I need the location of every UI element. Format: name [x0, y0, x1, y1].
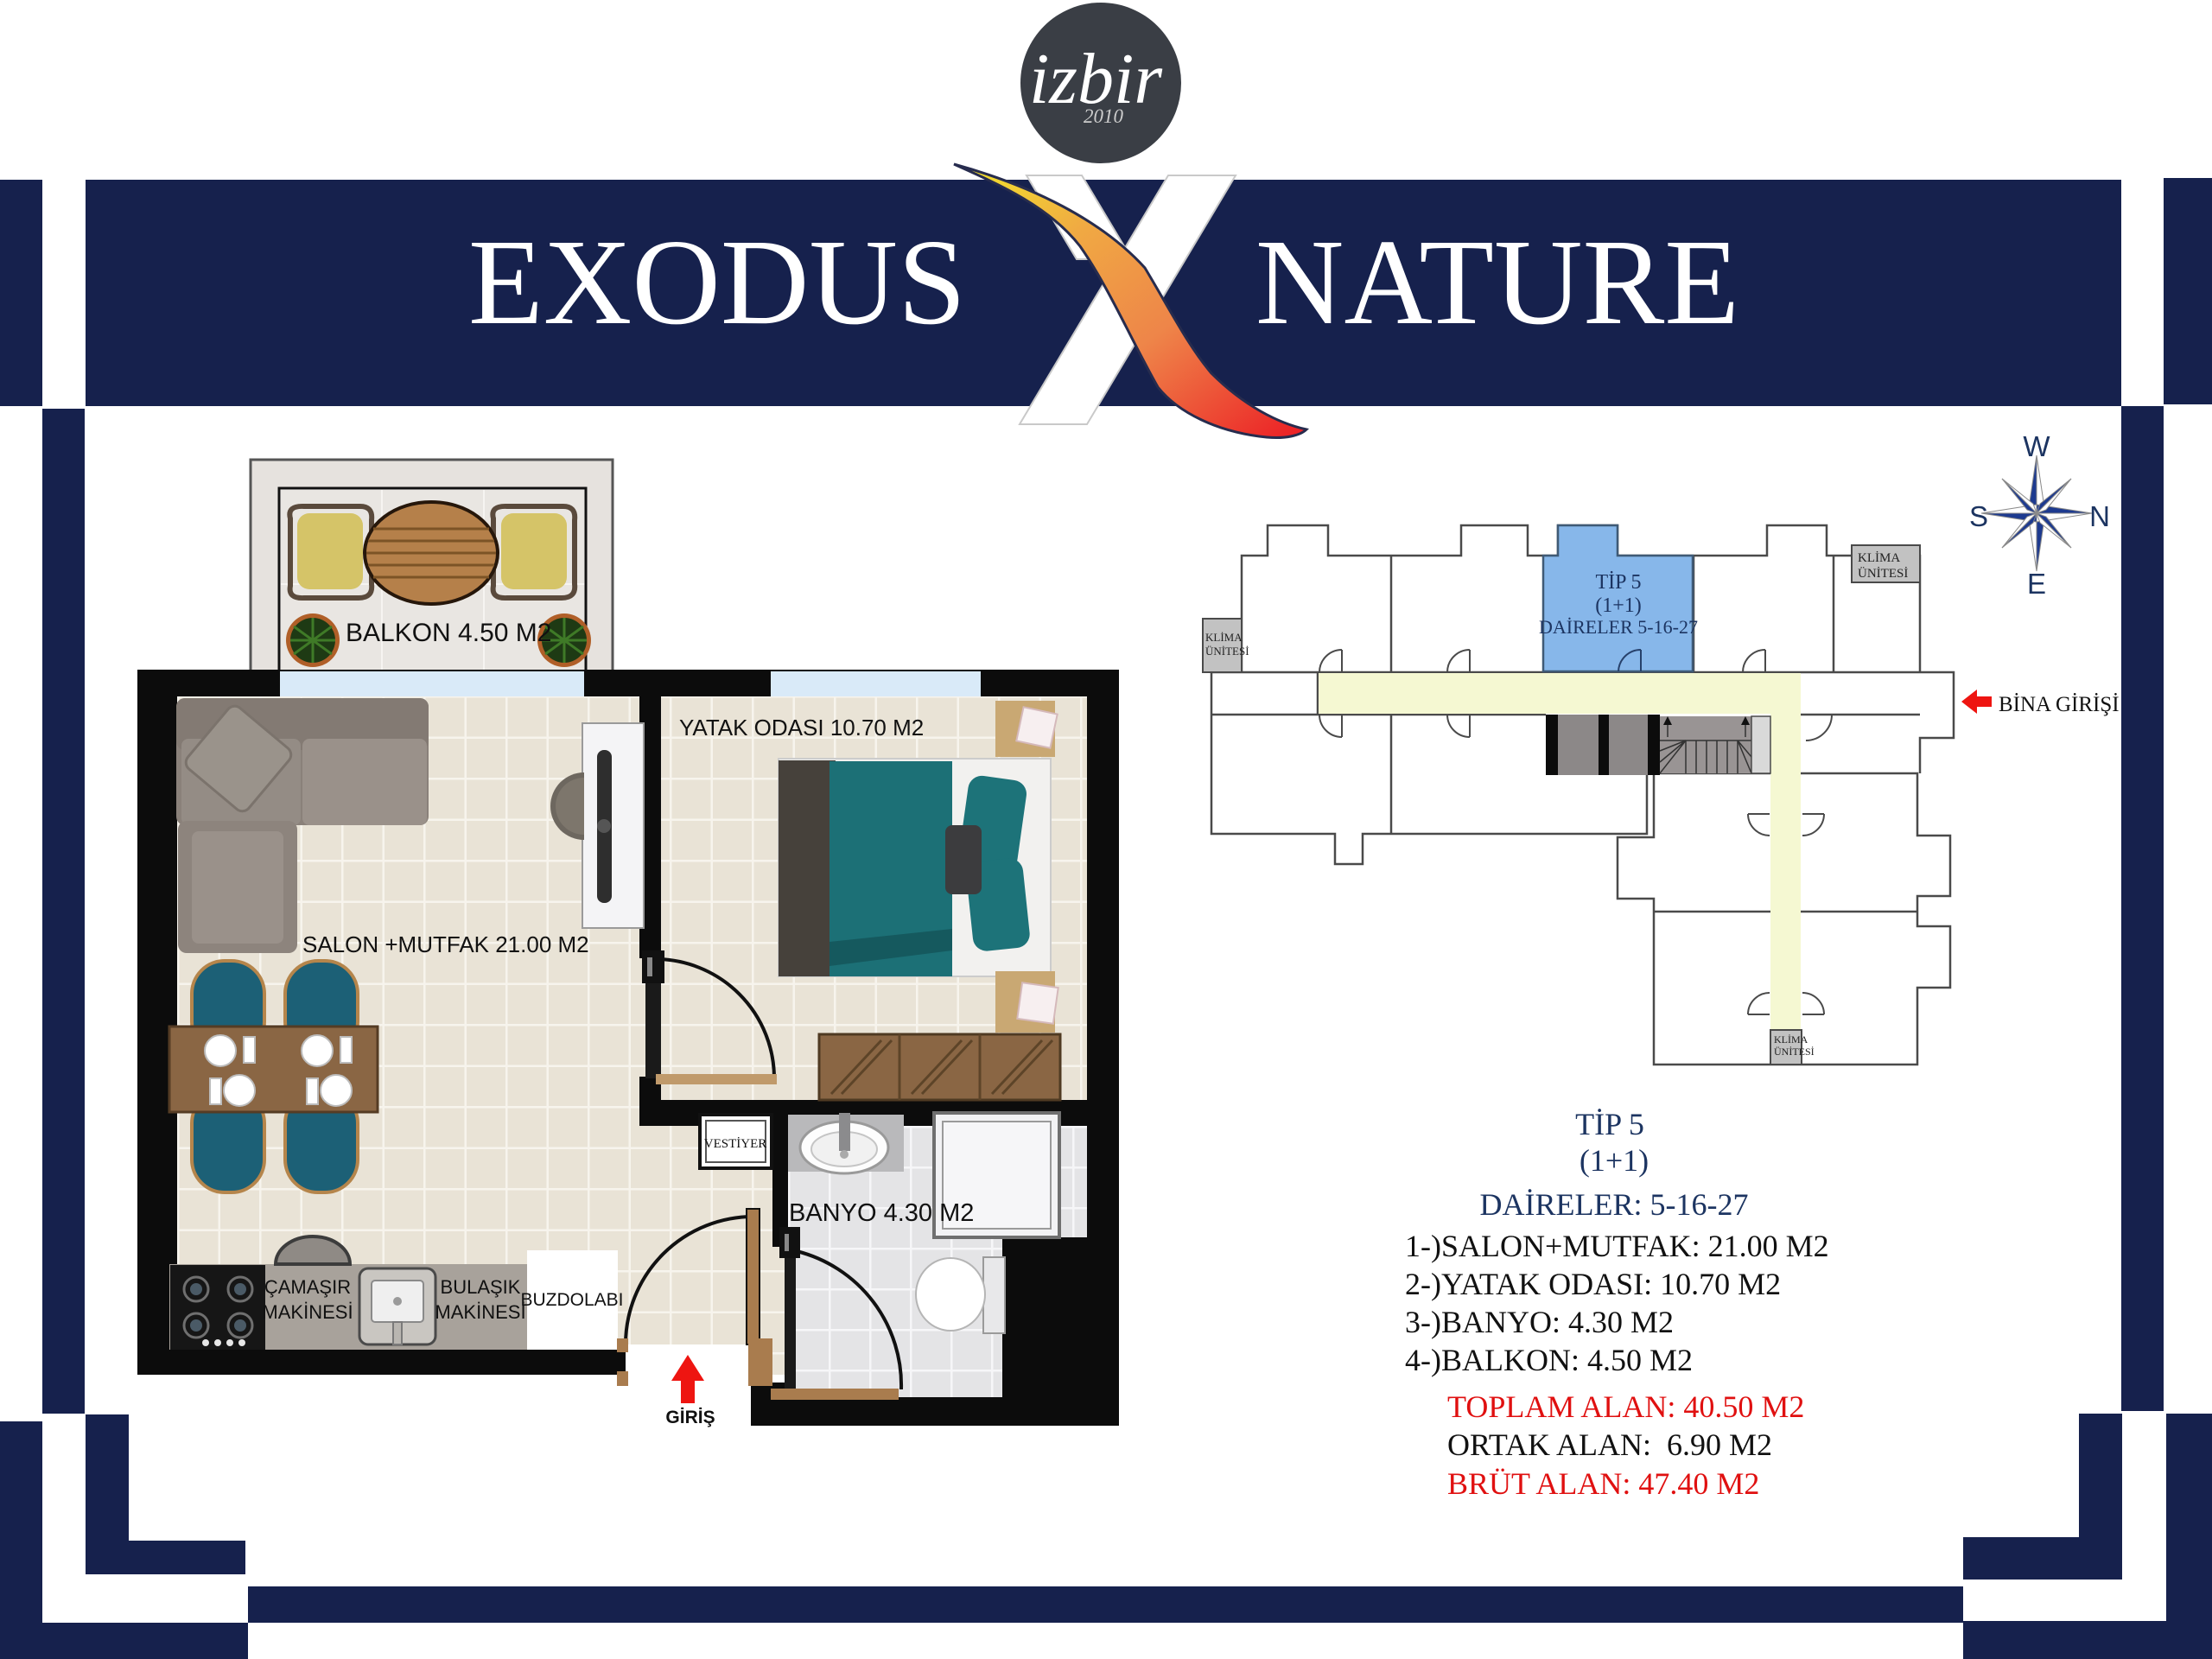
svg-text:DAİRELER: 5-16-27: DAİRELER: 5-16-27: [1480, 1187, 1749, 1222]
svg-text:KLİMA: KLİMA: [1858, 551, 1900, 565]
svg-text:2010: 2010: [1084, 105, 1124, 127]
svg-text:TİP 5: TİP 5: [1595, 571, 1641, 594]
svg-text:ÇAMAŞIR: ÇAMAŞIR: [264, 1276, 351, 1298]
svg-text:SALON +MUTFAK 21.00 M2: SALON +MUTFAK 21.00 M2: [302, 931, 589, 957]
svg-text:ÜNİTESİ: ÜNİTESİ: [1205, 645, 1249, 658]
svg-text:DAİRELER 5-16-27: DAİRELER 5-16-27: [1539, 616, 1698, 638]
svg-text:E: E: [2027, 568, 2046, 600]
svg-text:EXODUS: EXODUS: [468, 213, 966, 350]
svg-text:ÜNİTESİ: ÜNİTESİ: [1858, 566, 1908, 581]
svg-text:3-)BANYO: 4.30 M2: 3-)BANYO: 4.30 M2: [1405, 1305, 1674, 1339]
svg-text:MAKİNESİ: MAKİNESİ: [262, 1301, 353, 1323]
svg-text:TOPLAM ALAN: 40.50 M2: TOPLAM ALAN: 40.50 M2: [1447, 1389, 1804, 1424]
svg-text:VESTİYER: VESTİYER: [704, 1137, 767, 1151]
svg-text:BANYO 4.30 M2: BANYO 4.30 M2: [789, 1199, 974, 1227]
svg-text:(1+1): (1+1): [1580, 1143, 1649, 1178]
svg-text:W: W: [2023, 430, 2050, 462]
svg-text:NATURE: NATURE: [1255, 213, 1739, 350]
svg-text:KLİMA: KLİMA: [1774, 1033, 1808, 1046]
svg-text:BRÜT ALAN: 47.40 M2: BRÜT ALAN: 47.40 M2: [1447, 1466, 1759, 1501]
svg-text:1-)SALON+MUTFAK: 21.00 M2: 1-)SALON+MUTFAK: 21.00 M2: [1405, 1229, 1829, 1263]
svg-text:4-)BALKON: 4.50 M2: 4-)BALKON: 4.50 M2: [1405, 1343, 1693, 1377]
svg-text:KLİMA: KLİMA: [1205, 631, 1243, 644]
svg-text:TİP 5: TİP 5: [1575, 1107, 1644, 1141]
svg-text:BUZDOLABI: BUZDOLABI: [520, 1290, 623, 1310]
svg-text:2-)YATAK ODASI: 10.70 M2: 2-)YATAK ODASI: 10.70 M2: [1405, 1267, 1781, 1301]
svg-text:N: N: [2089, 500, 2110, 532]
svg-text:(1+1): (1+1): [1595, 594, 1642, 617]
svg-text:BİNA GİRİŞİ: BİNA GİRİŞİ: [1999, 693, 2120, 716]
svg-text:ORTAK ALAN: 6.90 M2: ORTAK ALAN: 6.90 M2: [1447, 1427, 1772, 1462]
svg-text:BALKON 4.50 M2: BALKON 4.50 M2: [346, 619, 551, 647]
svg-text:S: S: [1969, 500, 1988, 532]
svg-text:BULAŞIK: BULAŞIK: [441, 1276, 521, 1298]
svg-text:MAKİNESİ: MAKİNESİ: [435, 1301, 525, 1323]
svg-text:YATAK ODASI 10.70 M2: YATAK ODASI 10.70 M2: [679, 715, 924, 741]
svg-text:GİRİŞ: GİRİŞ: [665, 1408, 715, 1427]
svg-text:ÜNİTESİ: ÜNİTESİ: [1774, 1046, 1815, 1058]
